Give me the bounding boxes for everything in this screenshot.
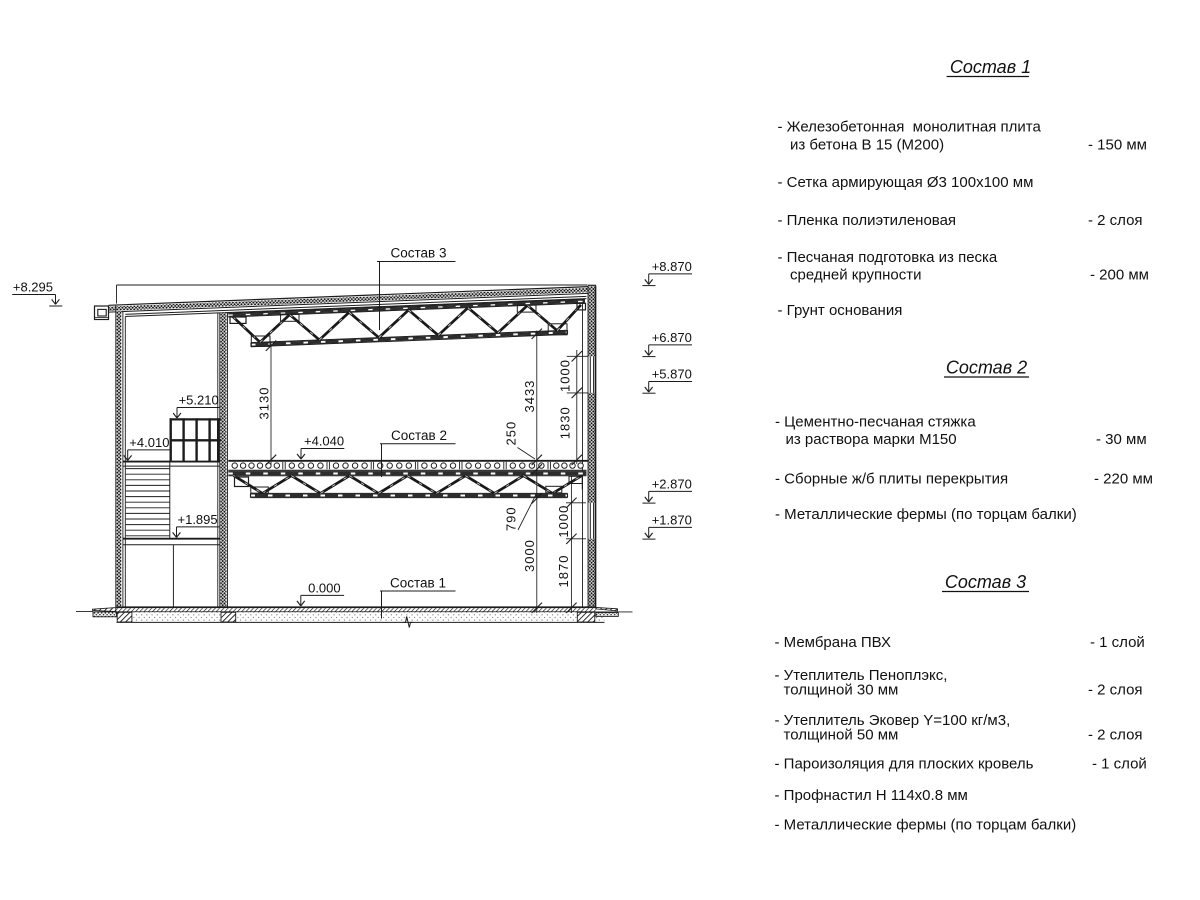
svg-text:+6.870: +6.870 xyxy=(652,330,692,345)
svg-text:+8.295: +8.295 xyxy=(13,280,53,295)
svg-text:- 2 слоя: - 2 слоя xyxy=(1088,727,1143,744)
svg-text:- Профнастил Н 114х0.8 мм: - Профнастил Н 114х0.8 мм xyxy=(775,787,968,804)
svg-text:3000: 3000 xyxy=(522,539,537,572)
svg-text:3130: 3130 xyxy=(257,387,272,420)
svg-text:- Сетка армирующая Ø3 100x100: - Сетка армирующая Ø3 100x100 мм xyxy=(778,174,1034,191)
svg-text:+8.870: +8.870 xyxy=(652,259,692,274)
svg-text:толщиной 30 мм: толщиной 30 мм xyxy=(784,682,899,699)
svg-text:- Грунт основания: - Грунт основания xyxy=(778,302,903,319)
svg-text:1000: 1000 xyxy=(556,505,571,538)
svg-text:+2.870: +2.870 xyxy=(652,477,692,492)
svg-text:- Сборные ж/б плиты перекрытия: - Сборные ж/б плиты перекрытия xyxy=(775,471,1008,488)
svg-text:- 2 слоя: - 2 слоя xyxy=(1088,212,1143,229)
svg-text:- 1 слой: - 1 слой xyxy=(1090,634,1145,651)
svg-text:- Цементно-песчаная стяжка: - Цементно-песчаная стяжка xyxy=(775,414,976,431)
svg-text:- 30 мм: - 30 мм xyxy=(1096,431,1147,448)
svg-text:- 220 мм: - 220 мм xyxy=(1094,471,1153,488)
svg-text:Состав 2: Состав 2 xyxy=(946,358,1027,378)
svg-text:- 200 мм: - 200 мм xyxy=(1090,266,1149,283)
svg-text:- Металлические фермы (по торц: - Металлические фермы (по торцам балки) xyxy=(775,506,1077,523)
svg-text:- Пленка полиэтиленовая: - Пленка полиэтиленовая xyxy=(778,212,957,229)
svg-text:- Пароизоляция для плоских кро: - Пароизоляция для плоских кровель xyxy=(775,756,1034,773)
svg-text:- 1 слой: - 1 слой xyxy=(1092,756,1147,773)
svg-text:+5.210: +5.210 xyxy=(179,393,219,408)
svg-text:+1.895: +1.895 xyxy=(178,512,218,527)
svg-text:- Песчаная подготовка из песка: - Песчаная подготовка из песка xyxy=(778,249,998,266)
svg-text:толщиной 50 мм: толщиной 50 мм xyxy=(784,727,899,744)
svg-text:Состав 2: Состав 2 xyxy=(391,428,447,443)
svg-text:- 150 мм: - 150 мм xyxy=(1088,137,1147,154)
svg-text:Состав 3: Состав 3 xyxy=(945,572,1026,592)
svg-text:средней крупности: средней крупности xyxy=(790,266,922,283)
svg-text:Состав 3: Состав 3 xyxy=(391,246,447,261)
svg-text:0.000: 0.000 xyxy=(308,581,341,596)
svg-text:3433: 3433 xyxy=(522,380,537,413)
svg-text:1000: 1000 xyxy=(558,359,573,392)
svg-text:- 2 слоя: - 2 слоя xyxy=(1088,682,1143,699)
svg-text:+1.870: +1.870 xyxy=(652,513,692,528)
svg-text:+4.010: +4.010 xyxy=(129,435,169,450)
svg-text:790: 790 xyxy=(503,506,518,531)
svg-text:+4.040: +4.040 xyxy=(304,434,344,449)
svg-text:+5.870: +5.870 xyxy=(652,367,692,382)
svg-text:250: 250 xyxy=(503,421,518,446)
svg-text:1870: 1870 xyxy=(556,555,571,588)
svg-text:Состав 1: Состав 1 xyxy=(390,576,446,591)
svg-text:- Мембрана ПВХ: - Мембрана ПВХ xyxy=(775,634,892,651)
svg-text:- Металлические фермы (по торц: - Металлические фермы (по торцам балки) xyxy=(775,817,1077,834)
svg-text:из бетона В 15 (М200): из бетона В 15 (М200) xyxy=(790,137,944,154)
svg-text:1830: 1830 xyxy=(558,406,573,439)
svg-text:из раствора марки М150: из раствора марки М150 xyxy=(786,431,957,448)
svg-text:Состав 1: Состав 1 xyxy=(950,57,1031,77)
svg-text:- Железобетонная монолитная п: - Железобетонная монолитная плита xyxy=(778,119,1042,136)
